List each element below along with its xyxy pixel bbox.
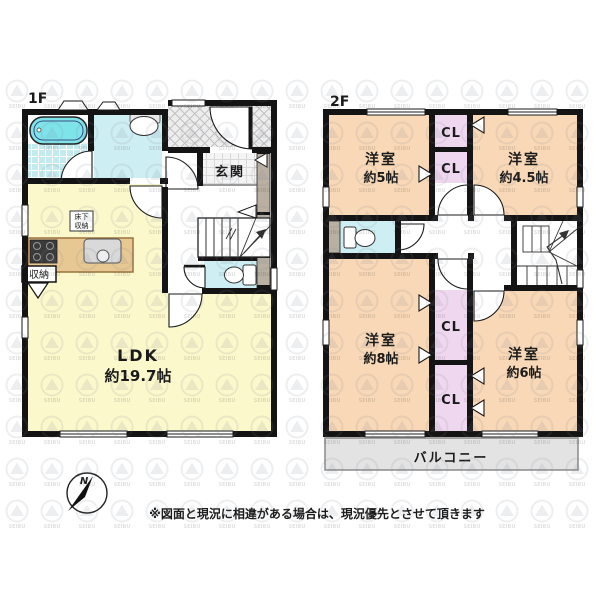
- ldk-size-label: 約19.7帖: [104, 367, 171, 385]
- bathtub: [30, 117, 87, 144]
- balcony: バルコニー: [325, 438, 578, 470]
- compass-north-label: N: [80, 476, 89, 487]
- stairs-up-arrow-2f: [559, 230, 569, 240]
- stairs-1f: [198, 218, 271, 257]
- toilet-cabinet-1f: [257, 255, 270, 288]
- floor-2f-title: 2F: [330, 94, 349, 110]
- compass: N: [67, 473, 107, 513]
- genkan-label: 玄関: [215, 164, 245, 180]
- washroom-door-swing: [166, 157, 198, 189]
- room-5jo-size: 約5帖: [363, 170, 398, 186]
- vent-bathroom: [58, 101, 88, 110]
- floor-2f: 2F: [323, 94, 583, 470]
- vent-washroom: [97, 102, 120, 110]
- room-8jo-label: 洋室: [365, 332, 397, 349]
- svg-text:収納: 収納: [29, 268, 49, 281]
- room-5jo-label: 洋室: [365, 151, 397, 168]
- ldk-label: LDK: [117, 346, 159, 365]
- svg-text:床下: 床下: [75, 212, 89, 221]
- room-8jo-size: 約8帖: [363, 351, 398, 367]
- room-4-5jo-label: 洋室: [508, 151, 540, 168]
- closet-b-label: CL: [441, 162, 461, 177]
- bath-door-swing: [61, 151, 92, 182]
- floor-1f-title: 1F: [28, 91, 47, 107]
- closet-a-label: CL: [441, 126, 461, 141]
- door-swing-5jo: [438, 185, 468, 215]
- floorplan-canvas: 1F: [0, 0, 600, 600]
- closet-d-label: CL: [441, 393, 461, 408]
- genkan-door-mark-lower: [238, 205, 256, 218]
- toilet-door-swing-2f: [398, 224, 424, 250]
- toilet-door-swing-1f: [184, 267, 205, 288]
- room-6jo-label: 洋室: [508, 346, 540, 363]
- toilet-cabinet-2f: [328, 221, 340, 253]
- floor-1f: 1F: [22, 91, 277, 437]
- stairs-2f: [517, 221, 577, 285]
- svg-text:収納: 収納: [75, 221, 89, 230]
- room-4-5jo-size: 約4.5帖: [499, 170, 548, 186]
- underfloor-storage: 床下 収納: [70, 211, 93, 231]
- door-swing-8jo: [438, 259, 468, 289]
- closet-c-label: CL: [441, 320, 461, 335]
- room-6jo-size: 約6帖: [506, 365, 541, 381]
- balcony-label: バルコニー: [414, 451, 489, 466]
- front-door-swing: [210, 107, 252, 149]
- disclaimer-note: ※図面と現況に相違がある場合は、現況優先とさせて頂きます: [149, 506, 485, 521]
- floorplan-page: 1F: [0, 0, 600, 600]
